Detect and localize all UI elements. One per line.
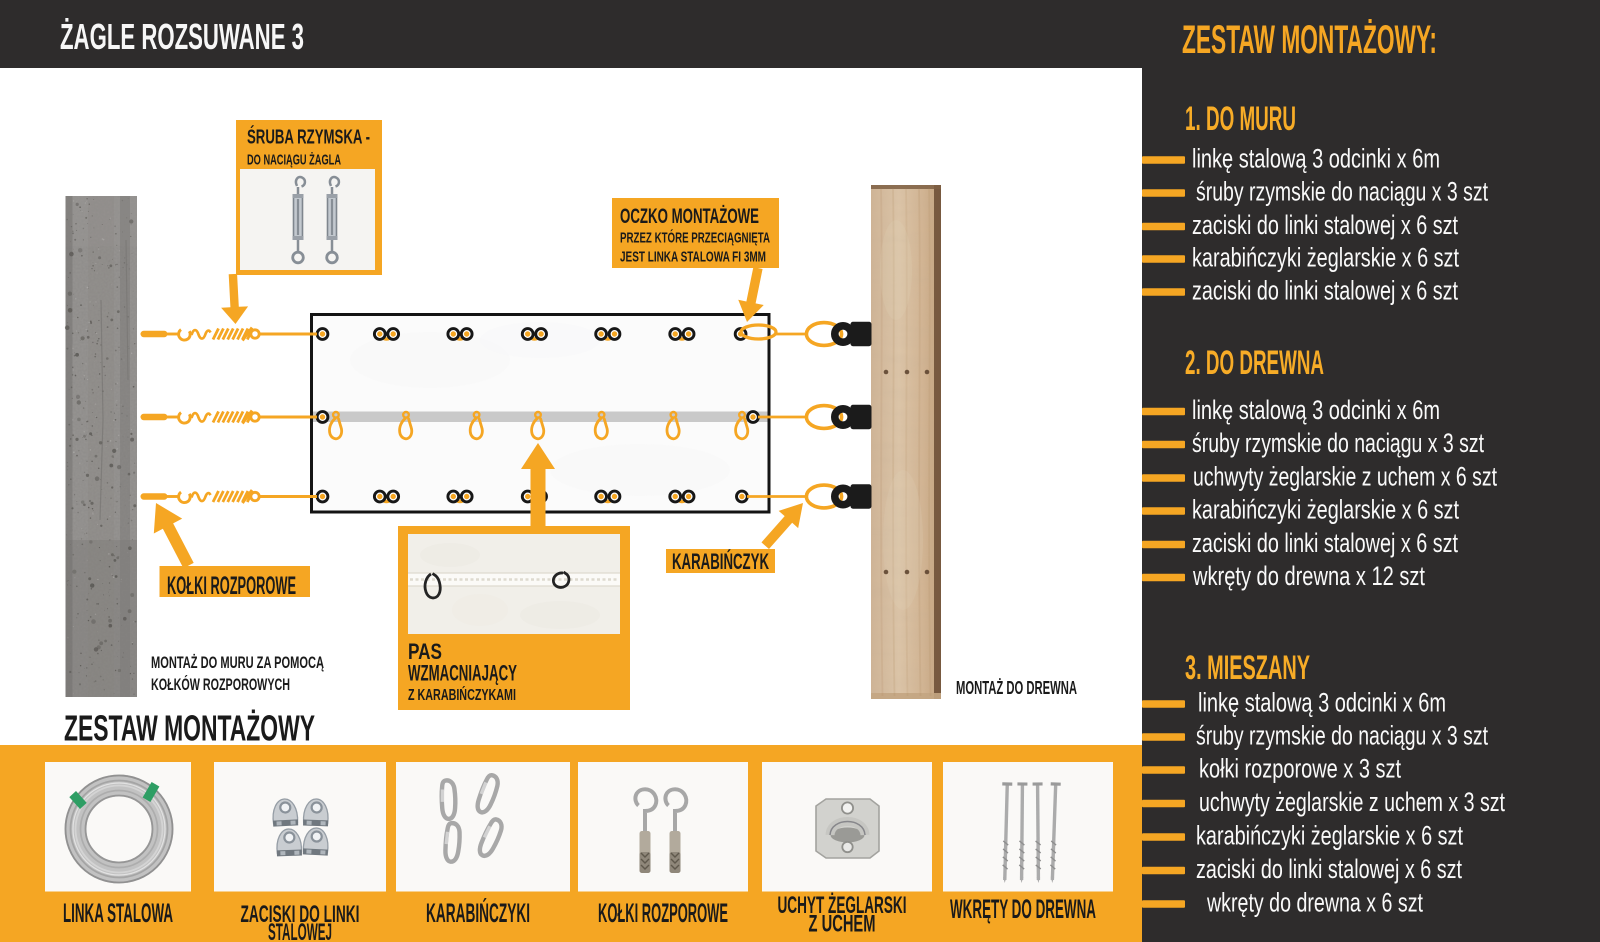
svg-text:KOŁKI ROZPOROWE: KOŁKI ROZPOROWE	[598, 898, 728, 928]
svg-text:ZESTAW MONTAŻOWY:: ZESTAW MONTAŻOWY:	[1182, 18, 1437, 62]
svg-text:zaciski do linki stalowej x 6: zaciski do linki stalowej x 6 szt	[1196, 854, 1462, 884]
svg-text:linkę stalową 3 odcinki x 6m: linkę stalową 3 odcinki x 6m	[1192, 144, 1440, 174]
svg-text:2. DO DREWNA: 2. DO DREWNA	[1185, 344, 1324, 382]
svg-text:linkę stalową 3 odcinki x 6m: linkę stalową 3 odcinki x 6m	[1192, 395, 1440, 425]
svg-text:KOŁKÓW ROZPOROWYCH: KOŁKÓW ROZPOROWYCH	[151, 675, 290, 694]
svg-text:STALOWEJ: STALOWEJ	[268, 919, 332, 942]
svg-text:ŻAGLE ROZSUWANE 3: ŻAGLE ROZSUWANE 3	[60, 16, 304, 57]
svg-text:zaciski do linki stalowej x 6: zaciski do linki stalowej x 6 szt	[1192, 276, 1458, 306]
svg-text:Z KARABIŃCZYKAMI: Z KARABIŃCZYKAMI	[408, 687, 516, 704]
svg-text:uchwyty żeglarskie z uchem x 6: uchwyty żeglarskie z uchem x 6 szt	[1193, 462, 1497, 492]
svg-text:WZMACNIAJĄCY: WZMACNIAJĄCY	[408, 661, 517, 686]
svg-text:śruby rzymskie do naciągu x 3: śruby rzymskie do naciągu x 3 szt	[1196, 177, 1488, 207]
svg-text:ZESTAW MONTAŻOWY: ZESTAW MONTAŻOWY	[64, 708, 315, 749]
svg-text:JEST LINKA STALOWA FI 3MM: JEST LINKA STALOWA FI 3MM	[620, 249, 766, 266]
svg-text:KOŁKI ROZPOROWE: KOŁKI ROZPOROWE	[167, 572, 296, 600]
svg-text:zaciski do linki stalowej x 6: zaciski do linki stalowej x 6 szt	[1192, 528, 1458, 558]
svg-text:wkręty do drewna x 12 szt: wkręty do drewna x 12 szt	[1192, 561, 1425, 591]
svg-text:KARABIŃCZYK: KARABIŃCZYK	[672, 549, 769, 574]
svg-text:uchwyty żeglarskie z uchem x 3: uchwyty żeglarskie z uchem x 3 szt	[1199, 787, 1505, 817]
svg-text:KARABIŃCZYKI: KARABIŃCZYKI	[426, 898, 530, 928]
svg-text:LINKA STALOWA: LINKA STALOWA	[63, 898, 173, 928]
svg-text:PRZEZ KTÓRE PRZECIĄGNIĘTA: PRZEZ KTÓRE PRZECIĄGNIĘTA	[620, 229, 770, 247]
svg-text:DO NACIĄGU ŻAGLA: DO NACIĄGU ŻAGLA	[247, 152, 341, 169]
svg-text:zaciski do linki stalowej x 6: zaciski do linki stalowej x 6 szt	[1192, 210, 1458, 240]
svg-text:śruby rzymskie do naciągu x 3: śruby rzymskie do naciągu x 3 szt	[1196, 721, 1488, 751]
svg-text:MONTAŻ DO MURU ZA POMOCĄ: MONTAŻ DO MURU ZA POMOCĄ	[151, 653, 324, 672]
svg-text:Z UCHEM: Z UCHEM	[809, 911, 876, 938]
svg-text:3. MIESZANY: 3. MIESZANY	[1185, 649, 1310, 687]
svg-text:ŚRUBA RZYMSKA -: ŚRUBA RZYMSKA -	[247, 125, 370, 149]
svg-text:kołki rozporowe x 3 szt: kołki rozporowe x 3 szt	[1199, 754, 1401, 784]
svg-text:śruby rzymskie do naciągu x 3: śruby rzymskie do naciągu x 3 szt	[1192, 428, 1484, 458]
svg-text:MONTAŻ DO DREWNA: MONTAŻ DO DREWNA	[956, 677, 1077, 698]
svg-text:karabińczyki żeglarskie x 6 sz: karabińczyki żeglarskie x 6 szt	[1192, 243, 1459, 273]
svg-text:OCZKO MONTAŻOWE: OCZKO MONTAŻOWE	[620, 204, 759, 228]
svg-text:WKRĘTY DO DREWNA: WKRĘTY DO DREWNA	[950, 894, 1096, 924]
svg-text:linkę stalową 3 odcinki x 6m: linkę stalową 3 odcinki x 6m	[1198, 688, 1446, 718]
svg-text:1. DO MURU: 1. DO MURU	[1185, 100, 1296, 138]
svg-text:karabińczyki żeglarskie x 6 sz: karabińczyki żeglarskie x 6 szt	[1192, 495, 1459, 525]
svg-text:karabińczyki żeglarskie x 6 sz: karabińczyki żeglarskie x 6 szt	[1196, 821, 1463, 851]
svg-text:wkręty do drewna x 6 szt: wkręty do drewna x 6 szt	[1206, 888, 1423, 918]
